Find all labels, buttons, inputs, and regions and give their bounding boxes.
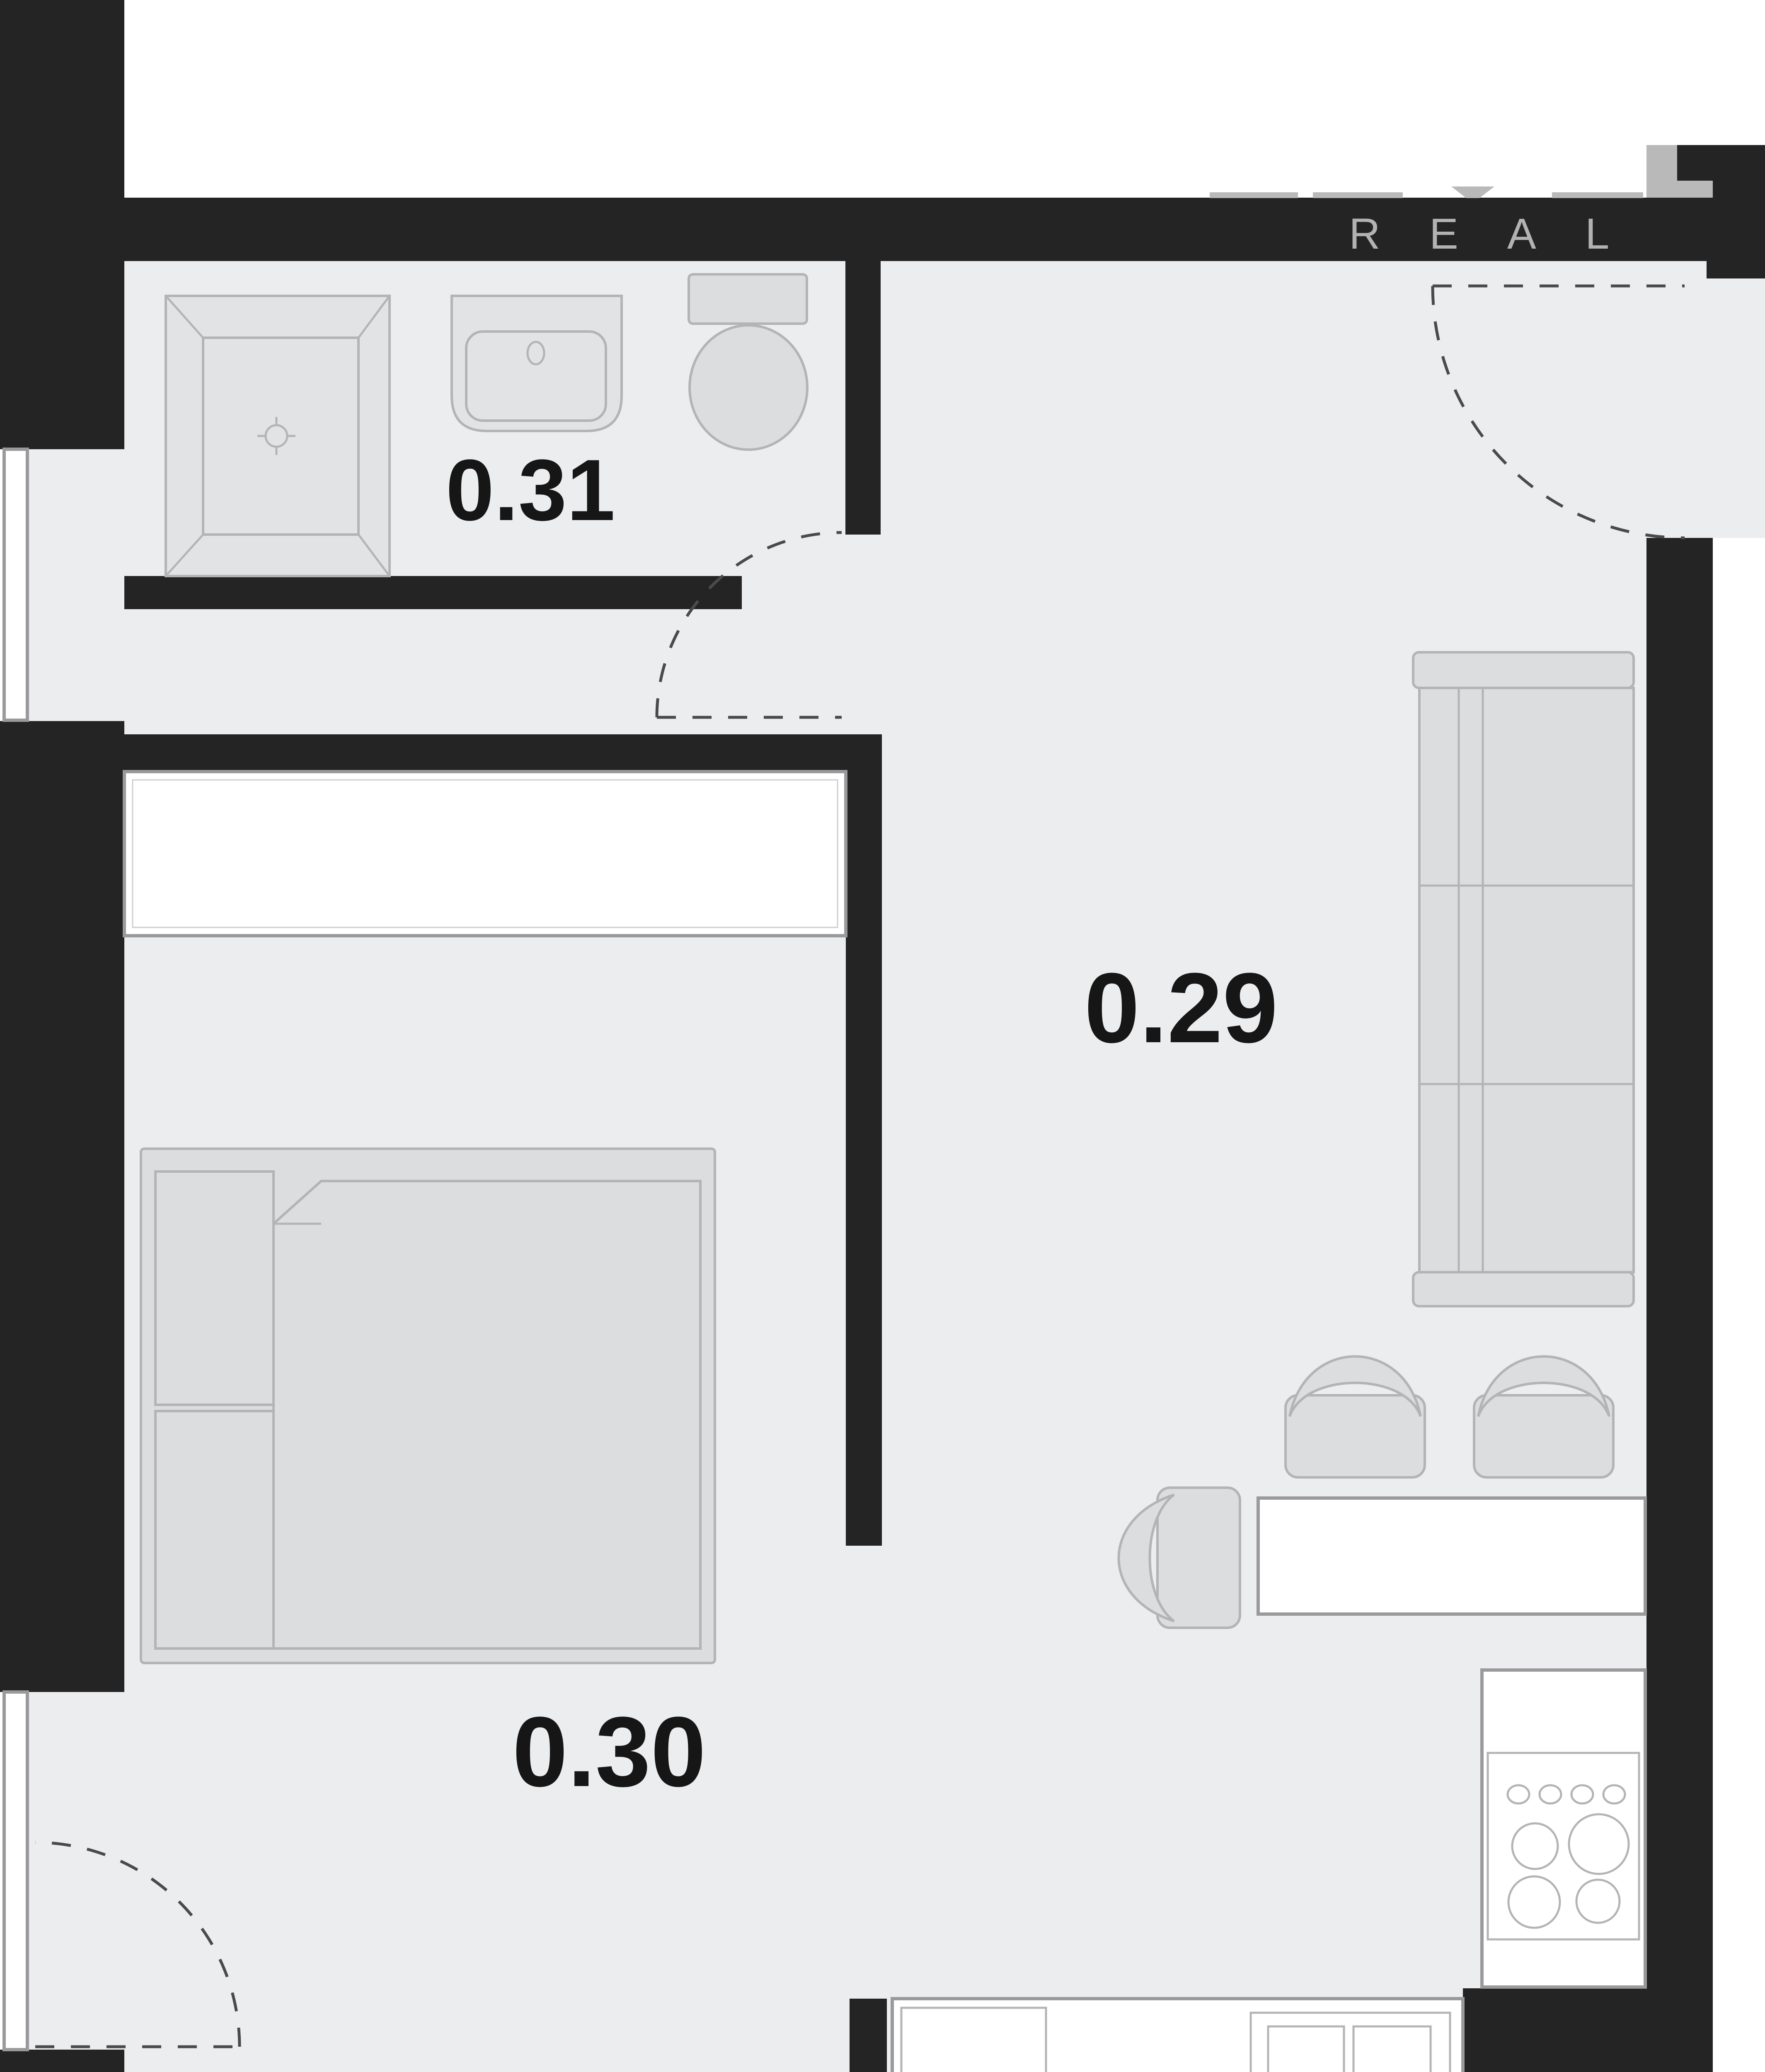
wall-left-middle	[0, 721, 124, 1692]
sofa-armrest	[1413, 652, 1634, 688]
bed-blanket	[274, 1181, 700, 1648]
kitchen-tall-unit-icon	[1482, 1670, 1645, 1987]
wall-divider-bedroom-living	[846, 772, 882, 1546]
wardrobe-icon	[124, 772, 846, 936]
toilet-bowl	[690, 325, 807, 450]
counter-body	[892, 1999, 1463, 2072]
bed-pillow	[155, 1411, 274, 1648]
bed-pillow	[155, 1172, 274, 1405]
clipped-letter-fragment-icon	[1552, 192, 1643, 198]
chair-seat	[1474, 1395, 1613, 1477]
wall-bathroom-bottom	[124, 576, 742, 609]
wall-right	[1646, 538, 1713, 1988]
wall-left-bottom	[0, 2050, 124, 2072]
logo-block-lip	[1707, 261, 1765, 278]
kitchen-counter-icon	[892, 1999, 1463, 2072]
floor-plan: REAL 0.31	[0, 0, 1765, 2072]
clipped-letter-l-foot-icon	[1677, 181, 1713, 198]
clipped-letter-l-stem-icon	[1646, 145, 1677, 198]
clipped-letter-fragment-icon	[1210, 192, 1298, 198]
brand-text: REAL	[1349, 210, 1658, 258]
clipped-letter-fragment-icon	[1313, 192, 1403, 198]
room-label-living: 0.29	[1084, 952, 1278, 1063]
wall-left-top	[0, 0, 124, 449]
room-label-bedroom: 0.30	[512, 1696, 706, 1807]
double-bed-icon	[141, 1149, 715, 1663]
wall-kitchen-pier	[850, 1999, 887, 2072]
toilet-tank	[689, 274, 807, 324]
room-label-bathroom: 0.31	[446, 441, 615, 539]
shower-inner	[203, 338, 358, 535]
chair-seat	[1286, 1395, 1425, 1477]
wall-bedroom-top	[124, 734, 882, 772]
window-bedroom-icon	[4, 1692, 27, 2050]
washbasin-icon	[452, 296, 622, 431]
toilet-icon	[689, 274, 807, 450]
vestibule-floor	[1713, 278, 1765, 538]
sofa-armrest	[1413, 1272, 1634, 1306]
wall-corner-bottom-right	[1463, 1988, 1713, 2072]
sofa-body	[1419, 688, 1634, 1272]
shower-tray-icon	[166, 296, 390, 576]
wall-bathroom-right	[845, 261, 881, 535]
desk-icon	[1258, 1498, 1645, 1614]
window-bathroom-icon	[4, 449, 27, 720]
sofa-icon	[1413, 652, 1634, 1306]
basin-inner	[466, 332, 606, 421]
office-chair-seat	[1157, 1488, 1240, 1628]
